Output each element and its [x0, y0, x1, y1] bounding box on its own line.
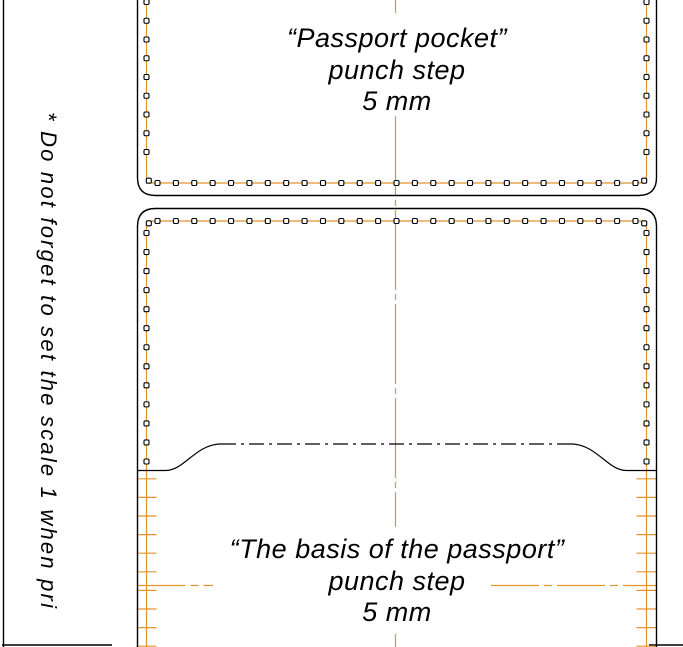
punch-hole [210, 219, 215, 224]
punch-hole [644, 421, 649, 426]
punch-hole [173, 181, 178, 186]
punch-hole [523, 219, 528, 224]
punch-hole [644, 402, 649, 407]
punch-hole [144, 326, 149, 331]
punch-hole [633, 219, 638, 224]
punch-hole [247, 181, 252, 186]
punch-hole [144, 288, 149, 293]
punch-hole [339, 181, 344, 186]
punch-hole [144, 421, 149, 426]
punch-hole [642, 221, 647, 226]
punch-hole [302, 181, 307, 186]
punch-hole [192, 219, 197, 224]
punch-hole [412, 219, 417, 224]
punch-hole [146, 178, 151, 183]
punch-hole [449, 181, 454, 186]
punch-hole [265, 181, 270, 186]
punch-hole [229, 181, 234, 186]
punch-hole [357, 181, 362, 186]
punch-hole [431, 181, 436, 186]
passport-base-step-value: 5 mm [137, 597, 657, 629]
punch-hole [559, 219, 564, 224]
punch-hole [144, 307, 149, 312]
punch-hole [644, 383, 649, 388]
punch-hole [615, 181, 620, 186]
passport-pocket-label: “Passport pocket” punch step 5 mm [137, 23, 657, 118]
fold-notch-left [138, 444, 222, 471]
punch-hole [559, 181, 564, 186]
punch-hole [644, 231, 649, 236]
punch-hole [468, 219, 473, 224]
passport-base-punch-step: punch step [137, 566, 657, 598]
punch-hole [320, 181, 325, 186]
punch-hole [644, 326, 649, 331]
punch-hole [247, 219, 252, 224]
punch-hole [644, 269, 649, 274]
punch-hole [541, 219, 546, 224]
punch-hole [229, 219, 234, 224]
punch-hole [644, 150, 649, 155]
punch-hole [376, 181, 381, 186]
punch-hole [615, 219, 620, 224]
punch-hole [596, 181, 601, 186]
punch-hole [596, 219, 601, 224]
punch-hole [144, 345, 149, 350]
punch-hole [578, 181, 583, 186]
passport-pocket-punch-step: punch step [137, 55, 657, 87]
punch-hole [144, 131, 149, 136]
passport-base-title: “The basis of the passport” [137, 534, 657, 566]
punch-hole [644, 307, 649, 312]
punch-hole [144, 459, 149, 464]
punch-hole [644, 345, 649, 350]
punch-hole [644, 440, 649, 445]
punch-hole [431, 219, 436, 224]
punch-hole [155, 181, 160, 186]
punch-hole [644, 0, 649, 5]
punch-hole [642, 178, 647, 183]
punch-hole [486, 219, 491, 224]
punch-hole [449, 219, 454, 224]
punch-hole [144, 0, 149, 5]
punch-hole [504, 219, 509, 224]
passport-base-label: “The basis of the passport” punch step 5… [137, 534, 657, 629]
punch-hole [644, 364, 649, 369]
punch-hole [394, 181, 399, 186]
punch-hole [144, 250, 149, 255]
punch-hole [644, 250, 649, 255]
passport-pocket-title: “Passport pocket” [137, 23, 657, 55]
punch-hole [357, 219, 362, 224]
punch-hole [155, 219, 160, 224]
punch-hole [173, 219, 178, 224]
punch-hole [644, 288, 649, 293]
punch-hole [144, 383, 149, 388]
punch-hole [394, 219, 399, 224]
punch-hole [633, 181, 638, 186]
punch-hole [302, 219, 307, 224]
punch-hole [144, 402, 149, 407]
punch-hole [486, 181, 491, 186]
punch-hole [144, 364, 149, 369]
punch-hole [468, 181, 473, 186]
punch-hole [144, 231, 149, 236]
passport-pocket-step-value: 5 mm [137, 86, 657, 118]
fold-notch-right [571, 444, 657, 471]
pattern-sheet: “Passport pocket” punch step 5 mm “The b… [0, 0, 683, 647]
punch-hole [578, 219, 583, 224]
punch-hole [644, 459, 649, 464]
punch-hole [376, 219, 381, 224]
punch-hole [339, 219, 344, 224]
punch-hole [504, 181, 509, 186]
punch-hole [284, 219, 289, 224]
punch-hole [644, 131, 649, 136]
punch-hole [146, 221, 151, 226]
punch-hole [144, 150, 149, 155]
punch-hole [144, 269, 149, 274]
scale-note: * Do not forget to set the scale 1 when … [35, 112, 61, 610]
punch-hole [284, 181, 289, 186]
punch-hole [192, 181, 197, 186]
punch-hole [210, 181, 215, 186]
punch-hole [265, 219, 270, 224]
punch-hole [144, 440, 149, 445]
punch-hole [523, 181, 528, 186]
punch-hole [412, 181, 417, 186]
punch-hole [320, 219, 325, 224]
punch-hole [541, 181, 546, 186]
